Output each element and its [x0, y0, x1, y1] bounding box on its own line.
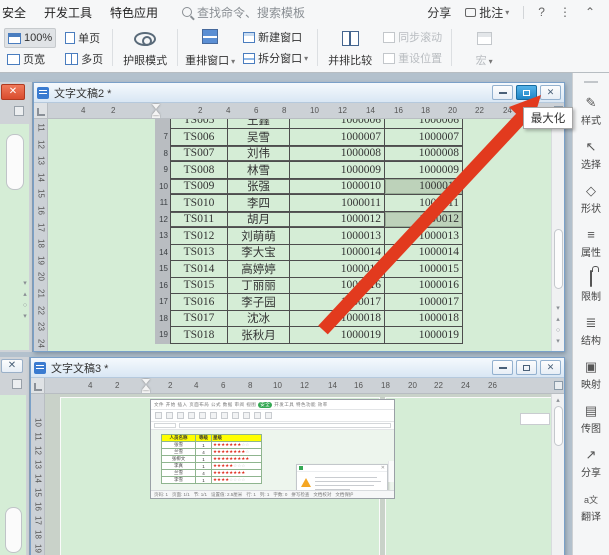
- row-number: 13: [155, 228, 170, 245]
- table-cell[interactable]: 李大宝: [228, 245, 290, 262]
- sidebar-item-sliders[interactable]: ≡属性: [573, 221, 609, 265]
- split-window-icon: [243, 53, 255, 64]
- sidebar-item-label: 选择: [581, 156, 601, 171]
- tab-selector[interactable]: [34, 103, 48, 118]
- sidebar-handle[interactable]: [584, 81, 598, 83]
- ruler-number: 16: [34, 502, 43, 512]
- ruler-number: 20: [408, 381, 417, 390]
- table-row: 8TS007刘伟10000081000008: [155, 146, 463, 163]
- ribbon-separator: [112, 29, 113, 66]
- ruler-number: 13: [37, 156, 46, 166]
- table-cell[interactable]: 1000009: [290, 162, 385, 179]
- table-row: 14TS013李大宝10000141000014: [155, 245, 463, 262]
- ruler-number: 14: [328, 381, 337, 390]
- table-cell[interactable]: 1000007: [290, 129, 385, 146]
- rearrange-windows-button[interactable]: 重排窗口▾: [182, 26, 238, 69]
- sidebar-item-label: 传图: [581, 420, 601, 435]
- vertical-scrollbar[interactable]: ▴: [551, 394, 564, 555]
- table-cell[interactable]: 1000008: [290, 146, 385, 163]
- table-row: 15TS014高婷婷10000151000015: [155, 261, 463, 278]
- sidebar-item-label: 形状: [581, 200, 601, 215]
- close-button[interactable]: ✕: [540, 85, 561, 100]
- table-cell[interactable]: 林雪: [228, 162, 290, 179]
- row-number: 8: [155, 146, 170, 163]
- structure-icon: ≣: [586, 315, 597, 331]
- ruler-strip: 422468101214161820222426: [48, 103, 564, 118]
- help-button[interactable]: ?: [538, 5, 545, 19]
- table-cell[interactable]: 1000006: [385, 119, 463, 129]
- ruler-number: 22: [37, 305, 46, 315]
- table-cell[interactable]: 1000011: [385, 179, 463, 196]
- nested-row: 李真1★★★★★☆☆☆: [162, 463, 262, 470]
- table-cell[interactable]: 1000017: [290, 294, 385, 311]
- table-row: 7TS006吴雪10000071000007: [155, 129, 463, 146]
- tab-special-apps[interactable]: 特色应用: [110, 4, 158, 21]
- ruler-toggle-icon[interactable]: [554, 381, 563, 390]
- ruler-number: 10: [34, 418, 43, 428]
- document-window-3: 文字文稿3 * ✕ 422468101214161820222426 10111…: [30, 357, 565, 555]
- table-row: 16TS015丁丽丽10000161000016: [155, 278, 463, 295]
- nested-status-bar: 页码: 1页面: 1/1节: 1/1设置值: 2.5厘米行: 1列: 1字数: …: [151, 490, 394, 498]
- table-cell[interactable]: TS007: [170, 146, 228, 163]
- table-cell[interactable]: 1100012: [385, 212, 463, 229]
- ruler-number: 10: [273, 381, 282, 390]
- search-icon: [182, 7, 192, 17]
- table-cell[interactable]: 1000011: [385, 195, 463, 212]
- table-cell[interactable]: 1000014: [385, 245, 463, 262]
- tab-security[interactable]: 安全: [2, 4, 26, 21]
- vertical-scrollbar[interactable]: ▴ ▾▴○▾: [551, 119, 564, 351]
- nested-header-cell: 星级: [212, 435, 262, 442]
- nested-cell: 兰雪: [162, 470, 196, 477]
- collapse-ribbon-icon[interactable]: ⌃: [585, 5, 595, 19]
- document-icon: [37, 87, 49, 99]
- nested-header-cell: 等级: [196, 435, 212, 442]
- nested-cell: 兰雪: [162, 449, 196, 456]
- sidebar-item-label: 结构: [581, 332, 601, 347]
- nested-cell: ★★★★★★★☆☆: [212, 442, 262, 449]
- minimize-button[interactable]: [492, 360, 513, 375]
- sidebar-item-mapping[interactable]: ▣映射: [573, 353, 609, 397]
- status-item: 拼写检查: [291, 492, 309, 498]
- scrollbar-thumb[interactable]: [554, 229, 563, 289]
- chevron-down-icon: ▾: [304, 54, 308, 63]
- nested-row: 李雪1★★★★☆☆☆☆: [162, 477, 262, 484]
- app-dot-icon: [299, 466, 303, 470]
- window2-titlebar[interactable]: 文字文稿2 * ✕: [34, 83, 564, 103]
- ruler-number: 4: [81, 106, 85, 115]
- side-by-side-icon: [342, 31, 359, 46]
- table-cell[interactable]: 1000007: [385, 129, 463, 146]
- ruler-number: 14: [366, 106, 375, 115]
- ruler-number: 22: [475, 106, 484, 115]
- close-button[interactable]: ✕: [540, 360, 561, 375]
- table-cell[interactable]: 1000018: [290, 311, 385, 328]
- tab-dev-tools[interactable]: 开发工具: [44, 4, 92, 21]
- row-number: 19: [155, 327, 170, 344]
- table-cell[interactable]: 1000006: [290, 119, 385, 129]
- table-row: 18TS017沈冰10000181000018: [155, 311, 463, 328]
- document-page[interactable]: 文件 开始 插入 页面布局 公式 数据 审阅 视图 安全 开发工具 特色功能 效…: [45, 394, 551, 555]
- ruler-number: 18: [37, 239, 46, 249]
- background-window-strip-top: ✕ ▾▴○▾: [0, 82, 33, 352]
- row-number: 17: [155, 294, 170, 311]
- share-button[interactable]: 分享: [427, 4, 451, 21]
- ruler-number: 16: [354, 381, 363, 390]
- eye-icon: [134, 32, 156, 46]
- sliders-icon: ≡: [587, 227, 595, 243]
- page-width-button[interactable]: 页宽: [4, 49, 56, 69]
- page-width-icon: [7, 54, 20, 65]
- status-item: 行: 1: [246, 492, 256, 498]
- sidebar-item-shapes[interactable]: ◇形状: [573, 177, 609, 221]
- table-cell[interactable]: 1000010: [290, 179, 385, 196]
- ribbon-separator: [317, 29, 318, 66]
- browse-buttons[interactable]: ▾▴○▾: [552, 303, 564, 347]
- ruler-number: 23: [37, 322, 46, 332]
- table-cell[interactable]: TS016: [170, 294, 228, 311]
- table-cell[interactable]: 1000014: [290, 245, 385, 262]
- row-number: 15: [155, 261, 170, 278]
- table-cell[interactable]: 张强: [228, 179, 290, 196]
- mapping-icon: ▣: [585, 359, 597, 375]
- nested-cell: 1: [196, 442, 212, 449]
- maximize-tooltip: 最大化: [523, 107, 573, 129]
- lock-icon: [590, 271, 592, 287]
- status-item: 文档保护: [335, 492, 353, 498]
- macro-icon: [477, 32, 492, 45]
- table-cell[interactable]: 1000012: [290, 212, 385, 229]
- scrollbar-thumb[interactable]: [6, 134, 24, 190]
- sidebar-item-label: 属性: [581, 244, 601, 259]
- ruler-number: 20: [448, 106, 457, 115]
- table-cell[interactable]: 1000009: [385, 162, 463, 179]
- maximize-button[interactable]: [516, 360, 537, 375]
- table-cell[interactable]: 丁丽丽: [228, 278, 290, 295]
- table-cell[interactable]: TS011: [170, 212, 228, 229]
- ruler-number: 15: [37, 189, 46, 199]
- embedded-image-fragment: [520, 413, 550, 425]
- sidebar-item-pen[interactable]: ✎样式: [573, 89, 609, 133]
- image-icon: ▤: [585, 403, 597, 419]
- tab-selector[interactable]: [31, 378, 45, 393]
- ruler-number: 19: [34, 544, 43, 554]
- table-cell[interactable]: TS013: [170, 245, 228, 262]
- table-cell[interactable]: TS008: [170, 162, 228, 179]
- table-cell[interactable]: TS015: [170, 278, 228, 295]
- ruler-number: 17: [34, 516, 43, 526]
- status-item: 设置值: 2.5厘米: [211, 492, 242, 498]
- reset-position-icon: [383, 53, 395, 64]
- ruler-number: 4: [194, 381, 198, 390]
- sidebar-item-structure[interactable]: ≣结构: [573, 309, 609, 353]
- command-search[interactable]: 查找命令、搜索模板: [182, 4, 305, 21]
- sidebar-item-lock[interactable]: 限制: [573, 265, 609, 309]
- table-cell[interactable]: TS018: [170, 327, 228, 344]
- single-page-button[interactable]: 单页: [62, 28, 106, 48]
- multi-page-button[interactable]: 多页: [62, 49, 106, 69]
- ruler-number: 19: [37, 255, 46, 265]
- ruler-number: 10: [310, 106, 319, 115]
- table-cell[interactable]: 1000016: [385, 278, 463, 295]
- nested-cell: ★★★★☆☆☆☆: [212, 477, 262, 484]
- new-window-button[interactable]: 新建窗口: [240, 27, 311, 47]
- status-item: 页面: 1/1: [172, 492, 190, 498]
- chevron-down-icon: ▾: [231, 57, 235, 66]
- document-icon: [34, 362, 46, 374]
- nested-row: 兰雪4★★★★★★★★: [162, 470, 262, 477]
- table-cell[interactable]: 高婷婷: [228, 261, 290, 278]
- ruler-number: 24: [503, 106, 512, 115]
- nested-cell: 李雪: [162, 477, 196, 484]
- table-row: 13TS012刘萌萌10000131000013: [155, 228, 463, 245]
- sidebar-item-label: 映射: [581, 376, 601, 391]
- nested-cell: ★★★★★★★★★: [212, 456, 262, 463]
- ruler-number: 2: [115, 381, 119, 390]
- minimize-button[interactable]: [492, 85, 513, 100]
- window2-title: 文字文稿2 *: [54, 85, 111, 101]
- table-row: 9TS008林雪10000091000009: [155, 162, 463, 179]
- nested-dialog: ✕: [296, 464, 388, 490]
- nested-cell: 1: [196, 477, 212, 484]
- row-number: [155, 119, 170, 129]
- background-window-strip-bottom: ✕: [0, 357, 30, 555]
- nested-header-cell: 人员名称: [162, 435, 196, 442]
- zoom-window-icon: [8, 33, 21, 44]
- status-item: 字数: 0: [273, 492, 287, 498]
- split-window-button[interactable]: 拆分窗口▾: [240, 48, 311, 68]
- divider: [523, 6, 524, 19]
- ruler-number: 11: [34, 432, 43, 442]
- browse-buttons[interactable]: ▾▴○▾: [20, 278, 30, 322]
- nested-cell: ★★★★★☆☆☆: [212, 463, 262, 470]
- ruler-number: 4: [226, 106, 230, 115]
- table-cell[interactable]: TS009: [170, 179, 228, 196]
- shapes-icon: ◇: [586, 183, 596, 199]
- status-item: 列: 1: [260, 492, 270, 498]
- macro-button: 宏▾: [456, 26, 512, 69]
- zoom-100-button[interactable]: 100%: [4, 28, 56, 48]
- ruler-number: 12: [37, 139, 46, 149]
- ruler-number: 13: [34, 460, 43, 470]
- table-row: 11TS010李四10000111000011: [155, 195, 463, 212]
- multi-page-icon: [65, 53, 78, 65]
- ruler-number: 12: [338, 106, 347, 115]
- table-cell[interactable]: TS005: [170, 119, 228, 129]
- pen-icon: ✎: [586, 95, 597, 111]
- scrollbar-thumb[interactable]: [5, 507, 22, 553]
- table-cell[interactable]: TS014: [170, 261, 228, 278]
- sidebar-item-label: 分享: [581, 464, 601, 479]
- horizontal-ruler: 422468101214161820222426: [31, 378, 564, 394]
- ruler-number: 11: [37, 123, 46, 133]
- scrollbar-thumb[interactable]: [554, 406, 563, 446]
- indent-marker[interactable]: [142, 379, 150, 393]
- close-icon[interactable]: ✕: [1, 359, 23, 373]
- close-icon: ✕: [381, 465, 385, 471]
- ruler-number: 12: [300, 381, 309, 390]
- share-icon: ↗: [586, 447, 597, 463]
- chevron-down-icon: ▾: [505, 8, 509, 17]
- ruler-toggle-icon[interactable]: [14, 106, 24, 116]
- row-number: 18: [155, 311, 170, 328]
- table-row: 10TS009张强10000101000011: [155, 179, 463, 196]
- table-cell[interactable]: 李子园: [228, 294, 290, 311]
- table-cell[interactable]: 沈冰: [228, 311, 290, 328]
- status-item: 节: 1/1: [194, 492, 207, 498]
- new-window-icon: [243, 32, 255, 43]
- ruler-number: 14: [37, 172, 46, 182]
- sidebar-item-label: 限制: [581, 288, 601, 303]
- nested-formula-bar: [151, 422, 394, 430]
- table-row: 12TS011胡月10000121100012: [155, 212, 463, 229]
- sidebar-item-label: 翻译: [581, 508, 601, 523]
- ruler-number: 24: [37, 338, 46, 348]
- nested-cell: 李真: [162, 463, 196, 470]
- sidebar-item-image[interactable]: ▤传图: [573, 397, 609, 441]
- comment-icon: [465, 8, 476, 17]
- nested-cell: 1: [196, 463, 212, 470]
- sync-scroll-icon: [383, 32, 395, 43]
- ruler-number: 15: [34, 488, 43, 498]
- table-cell[interactable]: 王鑫: [228, 119, 290, 129]
- close-icon[interactable]: ✕: [1, 84, 25, 100]
- table-row: 17TS016李子园10000171000017: [155, 294, 463, 311]
- ruler-number: 18: [421, 106, 430, 115]
- document-page[interactable]: TS005王鑫100000610000067TS006吴雪10000071000…: [48, 119, 551, 351]
- comment-button[interactable]: 批注 ▾: [465, 4, 509, 21]
- ruler-number: 16: [37, 206, 46, 216]
- embedded-screenshot: 文件 开始 插入 页面布局 公式 数据 审阅 视图 安全 开发工具 特色功能 效…: [150, 399, 395, 499]
- maximize-button[interactable]: [516, 85, 537, 100]
- horizontal-ruler: 422468101214161820222426: [34, 103, 564, 119]
- window-group: 新建窗口 拆分窗口▾: [238, 26, 313, 69]
- ruler-toggle-icon[interactable]: [12, 379, 22, 389]
- table-cell[interactable]: 张秋月: [228, 327, 290, 344]
- nested-cell: 4: [196, 470, 212, 477]
- table-cell[interactable]: 1000017: [385, 294, 463, 311]
- nested-menu-bar: 文件 开始 插入 页面布局 公式 数据 审阅 视图 安全 开发工具 特色功能 效…: [151, 400, 394, 409]
- sync-scroll-button: 同步滚动: [380, 27, 445, 47]
- ruler-number: 4: [88, 381, 92, 390]
- row-number: 12: [155, 212, 170, 229]
- ruler-number: 21: [37, 289, 46, 299]
- status-item: 文档校对: [313, 492, 331, 498]
- nested-cell: 1: [196, 456, 212, 463]
- ruler-number: 2: [168, 381, 172, 390]
- row-number: 10: [155, 179, 170, 196]
- nested-cell: ★★★★★★★★: [212, 470, 262, 477]
- nested-cell: 4: [196, 449, 212, 456]
- table-cell[interactable]: TS012: [170, 228, 228, 245]
- sidebar-item-label: 样式: [581, 112, 601, 127]
- table-cell[interactable]: 胡月: [228, 212, 290, 229]
- side-by-side-button[interactable]: 并排比较: [322, 26, 378, 69]
- single-page-icon: [65, 32, 75, 44]
- table-cell[interactable]: 1000011: [290, 195, 385, 212]
- table-cell[interactable]: TS006: [170, 129, 228, 146]
- ribbon-separator: [177, 29, 178, 66]
- nested-row: 张柳文1★★★★★★★★★: [162, 456, 262, 463]
- ruler-number: 14: [34, 474, 43, 484]
- document-window-2: 文字文稿2 * ✕ 422468101214161820222426 11121…: [33, 82, 565, 352]
- ribbon-separator: [451, 29, 452, 66]
- table-cell[interactable]: 1000013: [290, 228, 385, 245]
- ruler-number: 8: [248, 381, 252, 390]
- sidebar-item-share[interactable]: ↗分享: [573, 441, 609, 485]
- warning-icon: [301, 478, 311, 487]
- reset-position-button: 重设位置: [380, 48, 445, 68]
- compare-group: 同步滚动 重设位置: [378, 26, 447, 69]
- ruler-number: 18: [381, 381, 390, 390]
- vertical-ruler: 1112131415161718192021222324: [34, 119, 48, 351]
- nested-cell: 张雪: [162, 442, 196, 449]
- table-cell[interactable]: 刘萌萌: [228, 228, 290, 245]
- table-cell[interactable]: 1000016: [290, 278, 385, 295]
- table-row: 19TS018张秋月10000191000019: [155, 327, 463, 344]
- ruler-number: 6: [254, 106, 258, 115]
- row-number: 11: [155, 195, 170, 212]
- status-item: 页码: 1: [154, 492, 168, 498]
- sidebar-item-translate[interactable]: a文翻译: [573, 485, 609, 529]
- ruler-number: 8: [282, 106, 286, 115]
- nested-cell: 张柳文: [162, 456, 196, 463]
- ruler-number: 18: [34, 530, 43, 540]
- more-options-icon[interactable]: ⋮: [559, 5, 571, 19]
- nested-cell: ★★★★★★★★☆: [212, 449, 262, 456]
- eye-protection-button[interactable]: 护眼模式: [117, 26, 173, 69]
- row-number: 16: [155, 278, 170, 295]
- nested-row: 兰雪4★★★★★★★★☆: [162, 449, 262, 456]
- ruler-strip: 422468101214161820222426: [45, 378, 564, 393]
- stacked-windows-icon: [202, 29, 218, 44]
- table-cell[interactable]: 李四: [228, 195, 290, 212]
- ruler-number: 24: [461, 381, 470, 390]
- sidebar-item-cursor[interactable]: ↖选择: [573, 133, 609, 177]
- table-cell[interactable]: 1000013: [385, 228, 463, 245]
- table-cell[interactable]: 1000019: [385, 327, 463, 344]
- nested-sheet: 人员名称等级星级张雪1★★★★★★★☆☆兰雪4★★★★★★★★☆张柳文1★★★★…: [151, 430, 394, 490]
- dialog-text-lines: [315, 476, 384, 490]
- row-number: 14: [155, 245, 170, 262]
- table-cell[interactable]: TS010: [170, 195, 228, 212]
- table-cell[interactable]: 1000008: [385, 146, 463, 163]
- table-cell[interactable]: 吴雪: [228, 129, 290, 146]
- table-cell[interactable]: 1000015: [385, 261, 463, 278]
- nested-row: 张雪1★★★★★★★☆☆: [162, 442, 262, 449]
- row-number: 9: [155, 162, 170, 179]
- scroll-up-icon[interactable]: ▴: [552, 395, 564, 406]
- row-number: 7: [155, 129, 170, 146]
- ruler-number: 12: [34, 446, 43, 456]
- ruler-number: 20: [37, 272, 46, 282]
- table-cell[interactable]: TS017: [170, 311, 228, 328]
- nested-active-tab: 安全: [258, 402, 272, 408]
- window3-titlebar[interactable]: 文字文稿3 * ✕: [31, 358, 564, 378]
- vertical-ruler: 10111213141516171819: [31, 394, 45, 555]
- translate-icon: a文: [584, 491, 598, 507]
- nested-sidebar: [388, 461, 394, 482]
- table-cell[interactable]: 1000015: [290, 261, 385, 278]
- table-cell[interactable]: 刘伟: [228, 146, 290, 163]
- table-cell[interactable]: 1000019: [290, 327, 385, 344]
- right-sidebar: ✎样式↖选择◇形状≡属性限制≣结构▣映射▤传图↗分享a文翻译: [572, 73, 609, 555]
- ruler-number: 26: [488, 381, 497, 390]
- table-cell[interactable]: 1000018: [385, 311, 463, 328]
- ribbon: 100% 单页 页宽 多页 护眼模式 重排窗口▾ 新建窗口 拆分窗口▾ 并排比较…: [0, 24, 609, 73]
- window3-title: 文字文稿3 *: [51, 360, 108, 376]
- indent-marker[interactable]: [152, 104, 160, 118]
